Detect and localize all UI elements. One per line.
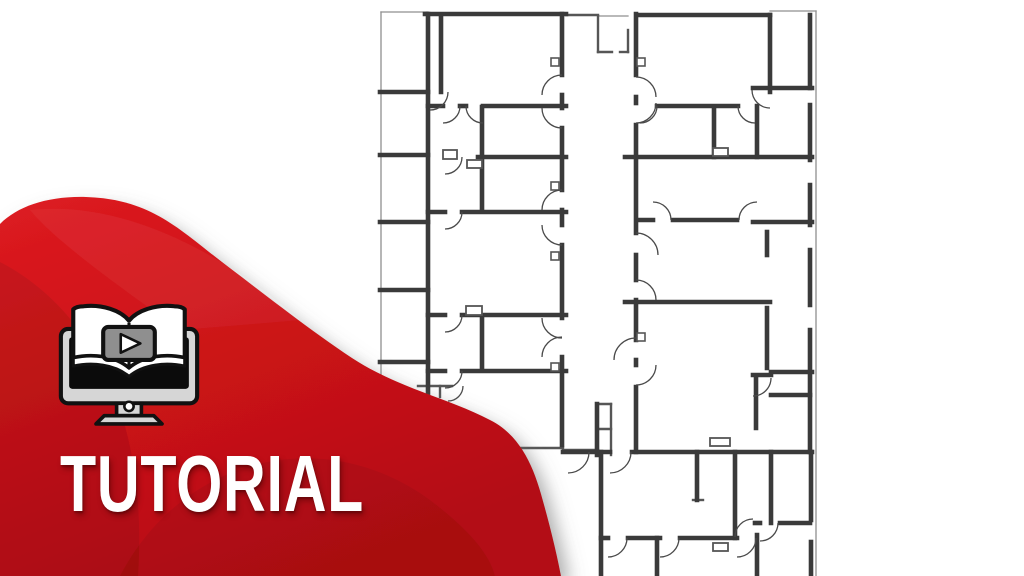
play-button-icon [103, 327, 155, 360]
book-play-monitor-icon [56, 298, 202, 426]
tutorial-title: TUTORIAL [60, 444, 364, 524]
thumbnail-canvas: TUTORIAL [0, 0, 1024, 576]
